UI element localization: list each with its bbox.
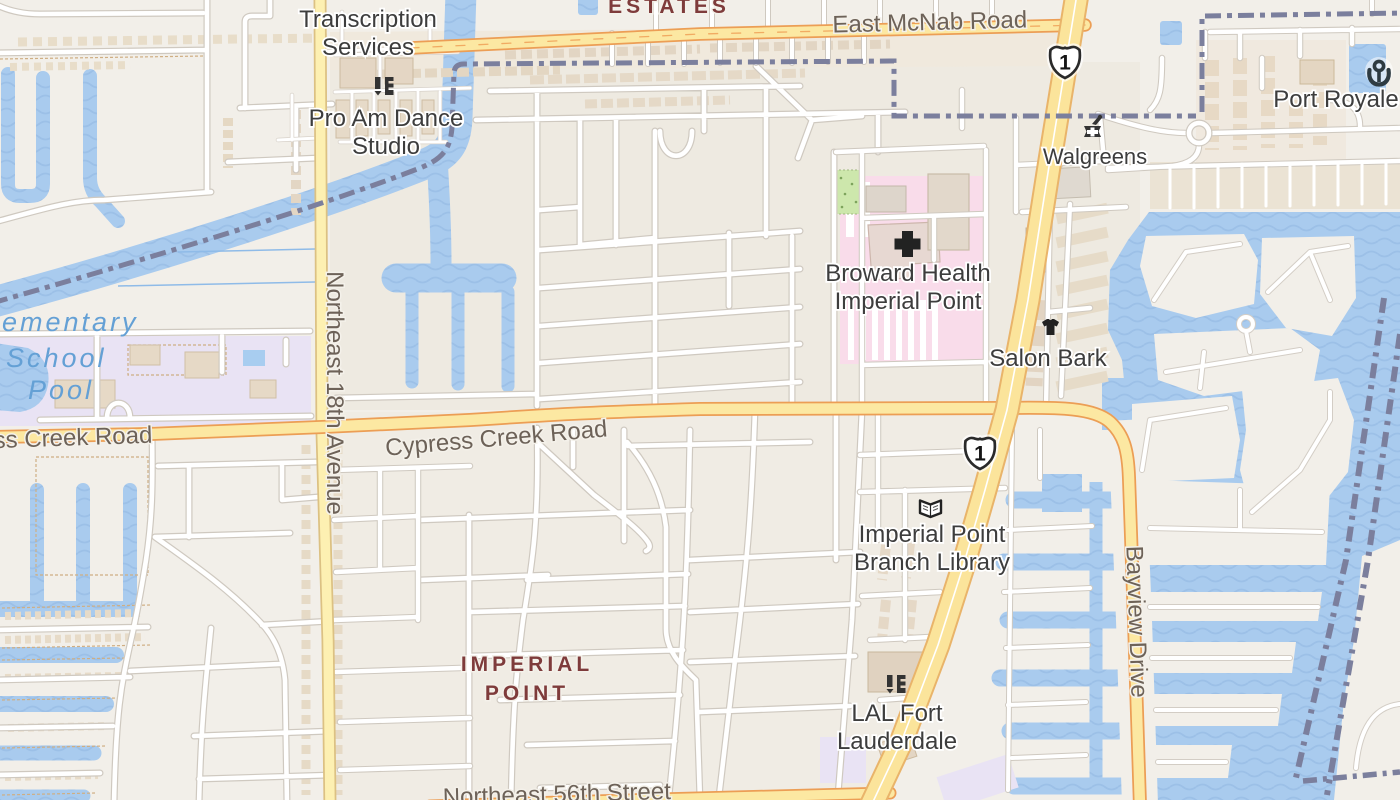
svg-text:IMPERIAL: IMPERIAL — [461, 653, 593, 676]
svg-text:Services: Services — [322, 34, 414, 61]
svg-text:East McNab Road: East McNab Road — [832, 6, 1027, 38]
svg-text:1: 1 — [1059, 52, 1071, 75]
svg-text:Walgreens: Walgreens — [1043, 144, 1147, 169]
svg-text:ss Creek Road: ss Creek Road — [0, 422, 153, 455]
svg-text:Port Royale: Port Royale — [1273, 86, 1398, 113]
svg-text:School: School — [6, 343, 107, 373]
svg-text:ESTATES: ESTATES — [608, 0, 730, 18]
svg-text:Imperial Point: Imperial Point — [835, 288, 982, 315]
svg-text:Pool: Pool — [28, 375, 94, 405]
svg-text:Broward Health: Broward Health — [825, 260, 990, 287]
svg-text:Northeast 18th Avenue: Northeast 18th Avenue — [321, 271, 348, 515]
svg-text:1: 1 — [974, 443, 986, 466]
svg-text:LAL Fort: LAL Fort — [851, 700, 942, 727]
svg-text:Studio: Studio — [352, 133, 420, 160]
svg-text:Bayview Drive: Bayview Drive — [1120, 545, 1152, 698]
svg-text:Transcription: Transcription — [299, 6, 437, 33]
svg-text:POINT: POINT — [485, 682, 569, 705]
svg-text:Salon Bark: Salon Bark — [989, 345, 1107, 372]
svg-text:Branch Library: Branch Library — [854, 549, 1010, 576]
svg-text:Elementary: Elementary — [0, 307, 139, 337]
svg-text:Pro Am Dance: Pro Am Dance — [309, 105, 464, 132]
svg-text:Imperial Point: Imperial Point — [859, 521, 1006, 548]
svg-text:Lauderdale: Lauderdale — [837, 728, 957, 755]
